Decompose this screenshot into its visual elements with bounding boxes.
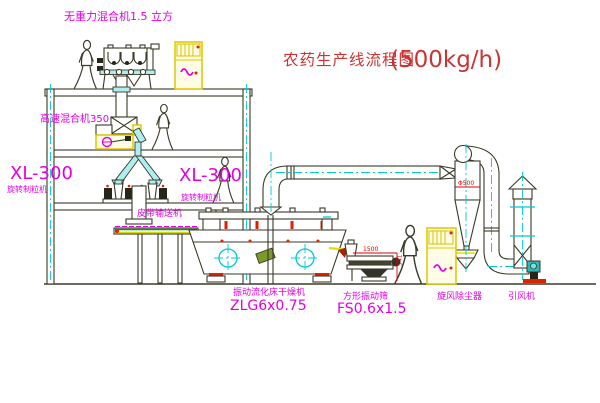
dryer-model-label: ZLG6x0.75 bbox=[230, 298, 307, 314]
drawing-capacity: (500kg/h) bbox=[390, 47, 502, 73]
floor2-slab bbox=[47, 150, 250, 157]
cyclone-label: 旋风除尘器 bbox=[437, 290, 482, 302]
roof-slab bbox=[45, 89, 252, 96]
gravity-mixer bbox=[97, 44, 159, 117]
spring-mount bbox=[256, 221, 259, 229]
granulator-mid-model: XL-300 bbox=[179, 165, 242, 186]
gravity-mixer-body bbox=[104, 48, 150, 72]
cyclone-vortex-finder bbox=[455, 146, 472, 163]
cyclone-cone bbox=[455, 200, 480, 246]
control-cabinet-right bbox=[427, 228, 456, 284]
granulator-left bbox=[103, 180, 134, 203]
spring-mount bbox=[291, 221, 294, 229]
belt-conveyor-label: 皮带输送机 bbox=[137, 207, 182, 219]
exhaust-duct bbox=[261, 152, 458, 215]
indicator-dot bbox=[197, 46, 200, 49]
sieve-feed-hopper bbox=[345, 244, 357, 256]
drop-duct bbox=[116, 76, 127, 117]
cyclone-dim-text: Φ500 bbox=[458, 180, 474, 187]
sieve-deck bbox=[347, 256, 393, 261]
sieve-discharge bbox=[360, 269, 388, 277]
conveyor-leg bbox=[138, 234, 142, 283]
dryer-foot bbox=[207, 276, 225, 282]
high-speed-mixer-label: 高速混合机350 bbox=[40, 112, 109, 125]
worker-floor2 bbox=[152, 104, 173, 149]
y-branch-left bbox=[116, 156, 141, 182]
dryer-label: 振动流化床干燥机 bbox=[233, 286, 305, 298]
conveyor-leg bbox=[178, 234, 182, 283]
gravity-mixer-label: 无重力混合机1.5 立方 bbox=[64, 9, 173, 23]
control-cabinet-top bbox=[175, 42, 202, 89]
sieve-height-dim: 541 bbox=[397, 254, 404, 266]
spring-mount bbox=[225, 221, 228, 229]
gravity-mixer-side-pipe bbox=[147, 48, 153, 71]
square-vibrating-sieve: 1500 541 bbox=[345, 240, 404, 281]
indicator-dot bbox=[450, 267, 453, 270]
y-branch-right bbox=[136, 156, 160, 182]
dryer-foot bbox=[313, 276, 331, 282]
fan-base bbox=[523, 279, 546, 283]
fluid-bed-dryer bbox=[189, 208, 348, 284]
indicator-dot bbox=[195, 72, 198, 75]
granulator-mid-name: 旋转制粒机 bbox=[181, 192, 221, 202]
granulator-left-name: 旋转制粒机 bbox=[7, 184, 47, 194]
worker-roof bbox=[74, 40, 96, 88]
belt-conveyor bbox=[114, 227, 198, 284]
roof-flange bbox=[113, 87, 130, 92]
conveyor-leg bbox=[158, 234, 162, 283]
indicator-dot bbox=[450, 232, 453, 235]
sieve-model-label: FS0.6x1.5 bbox=[337, 301, 407, 317]
worker-ground bbox=[395, 225, 422, 283]
duct-outlet-flange bbox=[126, 219, 152, 224]
process-flow-drawing: Φ500 bbox=[0, 0, 600, 403]
fan-pedestal bbox=[530, 272, 538, 279]
sieve-base bbox=[362, 277, 386, 281]
sieve-length-dim: 1500 bbox=[363, 246, 378, 253]
fan-label: 引风机 bbox=[508, 290, 535, 302]
granulator-left-model: XL-300 bbox=[10, 163, 73, 184]
